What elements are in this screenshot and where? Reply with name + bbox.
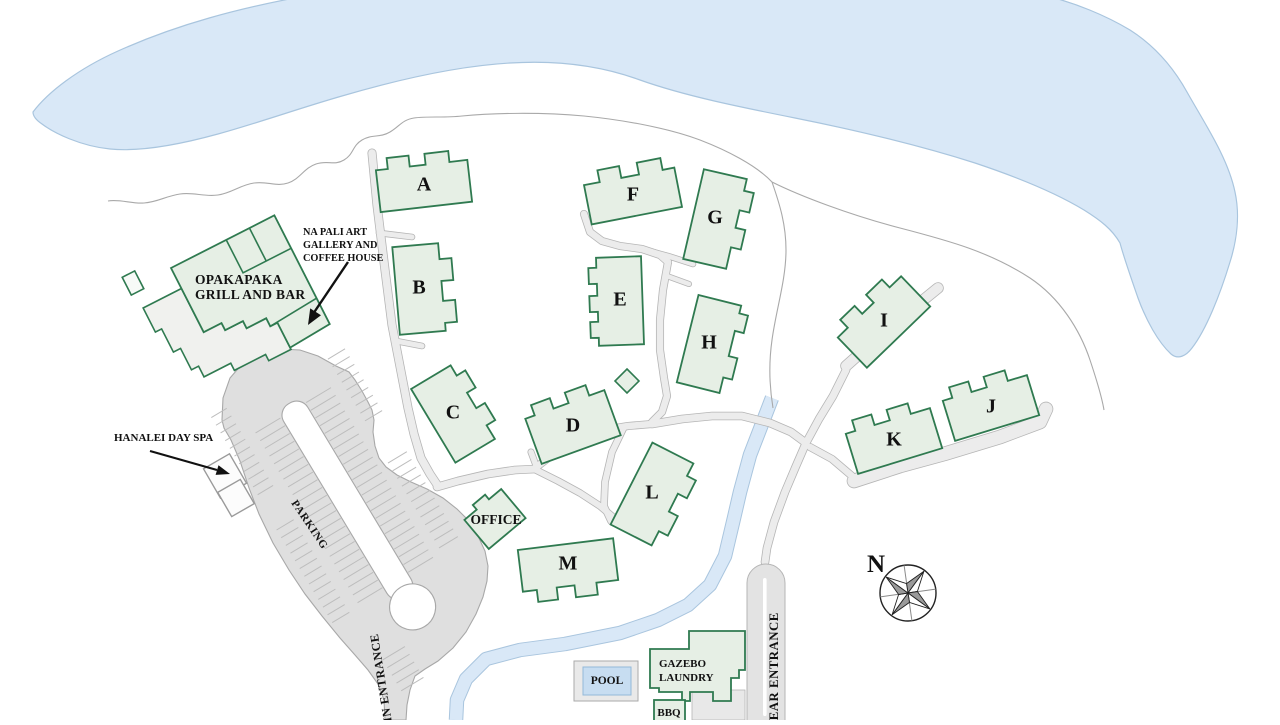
svg-text:GALLERY AND: GALLERY AND <box>303 240 378 251</box>
svg-text:H: H <box>701 332 717 354</box>
svg-text:J: J <box>986 396 996 418</box>
svg-text:B: B <box>412 277 425 299</box>
svg-text:D: D <box>566 415 580 437</box>
svg-text:LAUNDRY: LAUNDRY <box>659 672 714 684</box>
svg-text:BBQ: BBQ <box>657 707 681 719</box>
svg-text:HANALEI DAY SPA: HANALEI DAY SPA <box>114 432 213 444</box>
svg-text:N: N <box>867 551 885 578</box>
svg-text:L: L <box>645 482 658 504</box>
svg-text:POOL: POOL <box>591 675 624 687</box>
svg-text:C: C <box>446 402 460 424</box>
svg-text:NA PALI ART: NA PALI ART <box>303 227 367 238</box>
svg-text:E: E <box>613 289 626 311</box>
svg-text:COFFEE HOUSE: COFFEE HOUSE <box>303 253 384 264</box>
svg-text:GAZEBO: GAZEBO <box>659 658 707 670</box>
svg-text:M: M <box>559 553 578 575</box>
svg-text:G: G <box>707 207 723 229</box>
svg-text:GRILL AND BAR: GRILL AND BAR <box>195 287 305 302</box>
svg-text:A: A <box>417 174 432 196</box>
svg-text:REAR ENTRANCE: REAR ENTRANCE <box>767 612 781 720</box>
svg-text:OPAKAPAKA: OPAKAPAKA <box>195 272 283 287</box>
svg-text:K: K <box>886 429 902 451</box>
svg-text:I: I <box>880 310 888 332</box>
svg-text:F: F <box>627 184 639 206</box>
svg-text:OFFICE: OFFICE <box>470 512 521 527</box>
